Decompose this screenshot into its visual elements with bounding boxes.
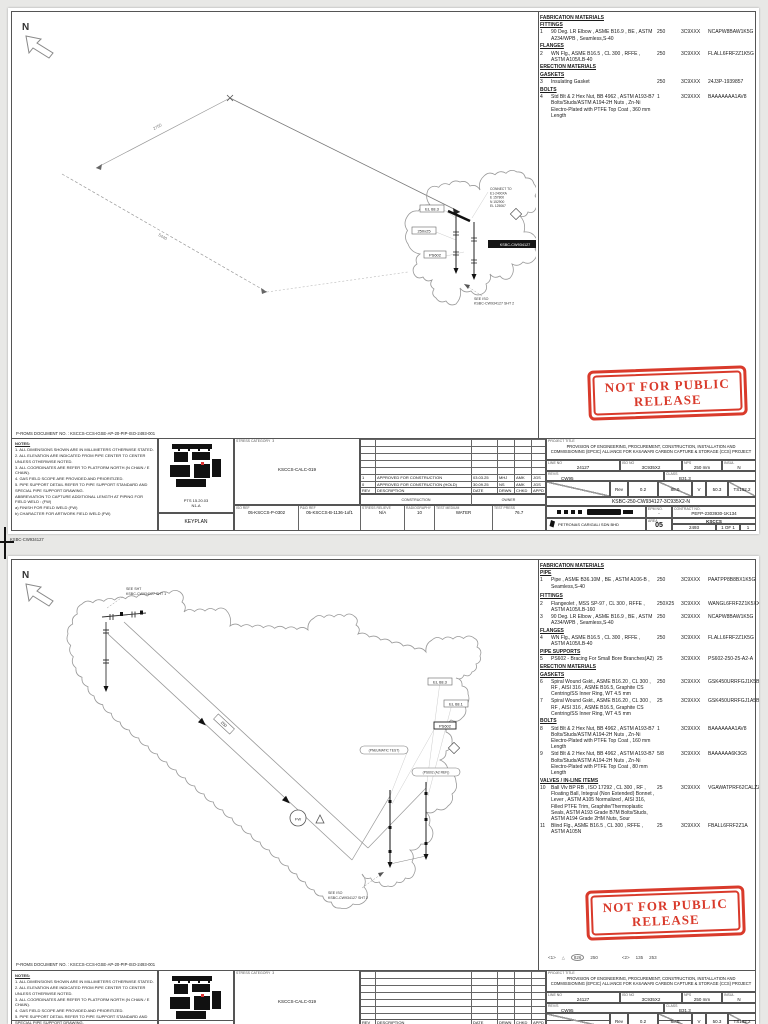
- item-description: Pipe , ASME B36.10M , BE , ASTM A106-B ,…: [551, 577, 655, 591]
- elevation-label: EL 68.1: [449, 702, 463, 707]
- field-class: CLASSB31.3: [664, 1003, 756, 1013]
- revision-table: [360, 970, 546, 1019]
- continuation-note: SEE ISO KSBC-CW934127 SHT 2: [474, 297, 514, 306]
- support-label: PS602: [439, 724, 452, 729]
- item-ident: 3C9XXX: [681, 823, 706, 835]
- item-no: 10: [540, 785, 549, 822]
- contractor-logo: [547, 507, 643, 517]
- value-cell: V: [692, 481, 706, 497]
- item-description: Insulating Gasket: [551, 79, 655, 85]
- item-ident: 3C9XXX: [681, 635, 706, 647]
- item-ident: 3C9XXX: [681, 614, 706, 626]
- revision-row: [361, 439, 545, 446]
- pipe-run: [108, 622, 426, 860]
- item-description: WN Flg., ASME B16.5 , CL 300 , RFFE , AS…: [551, 51, 655, 63]
- item-code: FLALL6FRF2Z1K5G: [708, 51, 758, 63]
- contractor-logo-cell: [546, 506, 646, 518]
- svg-text:SEE ISO: SEE ISO: [328, 891, 343, 895]
- svg-text:FW: FW: [295, 817, 301, 822]
- item-size: 250: [657, 29, 679, 41]
- field-service: REV/SCW95: [546, 471, 664, 481]
- branch-cluster: EL 68.3 EL 68.1 PS602 (PNEUMATIC TEST) (…: [290, 678, 468, 900]
- materials-section-header: FITTINGS: [540, 593, 754, 599]
- item-description: Std Blt & 2 Hex Nut, BB 4962 , ASTM A193…: [551, 726, 655, 751]
- item-no: 5: [540, 656, 549, 662]
- materials-section-header: GASKETS: [540, 72, 754, 78]
- materials-row: 4 WN Flg., ASME B16.5 , CL 300 , RFFE , …: [540, 635, 754, 647]
- revision-row: [361, 978, 545, 985]
- materials-row: 3 90 Deg. LR Elbow , ASME B16.9 , BE , A…: [540, 614, 754, 626]
- note-line: 1. ALL DIMENSIONS SHOWN ARE IN MILLIMETE…: [15, 447, 154, 452]
- materials-row: 4 Std Blt & 2 Hex Nut, BB 4962 , ASTM A1…: [540, 94, 754, 119]
- dimension-label: 2750: [152, 122, 163, 131]
- item-ident: 3C9XXX: [681, 601, 706, 613]
- revision-row: [361, 971, 545, 978]
- svg-text:EL 125067: EL 125067: [490, 204, 506, 208]
- see-sheet-note: SEE SHT KSBC-CW934127 SHT 1: [126, 587, 166, 596]
- keyplan-box: PTS 15.20.03 N1-A: [158, 970, 234, 1024]
- revision-cloud: [67, 590, 481, 908]
- note-line: 5. PIPE SUPPORT DETAIL REFER TO PIPE SUP…: [15, 1014, 154, 1024]
- project-title-cell: PROJECT TITLE PROVISION OF ENGINEERING, …: [546, 438, 756, 460]
- revision-cloud: [405, 170, 536, 305]
- materials-row: 10 Ball Vlv BP RB , ISO 17292 , CL 300 ,…: [540, 785, 754, 822]
- item-no: 9: [540, 751, 549, 776]
- item-ident: 3C9XXX: [681, 751, 706, 776]
- materials-divider: [538, 12, 539, 438]
- tie-in-detail: SEE SHT KSBC-CW934127 SHT 1: [102, 587, 166, 692]
- revision-row: [361, 999, 545, 1006]
- note-line: 1. ALL DIMENSIONS SHOWN ARE IN MILLIMETE…: [15, 979, 154, 984]
- item-size: 250: [657, 614, 679, 626]
- field-line-no: LINE NO24127: [546, 460, 620, 471]
- materials-section-header: PIPE: [540, 570, 754, 576]
- trim-mark: [4, 527, 6, 559]
- not-for-public-release-stamp: NOT FOR PUBLICRELEASE: [585, 885, 746, 941]
- field-insulation: INSULN: [722, 992, 756, 1003]
- item-description: Flangeolet , MSS SP-97 , CL 300 , RFFE ,…: [551, 601, 655, 613]
- notes-title: NOTES:: [15, 973, 154, 978]
- proms-document-no: P-ROMS DOCUMENT NO. : KSCCS-CCS-IGSE-AP-…: [16, 962, 155, 967]
- rev-cell: Rev: [610, 481, 628, 497]
- value-cell: 0.2: [628, 481, 658, 497]
- size-label: 250x25: [417, 229, 431, 234]
- field-insulation: INSULN: [722, 460, 756, 471]
- item-size: 250: [657, 679, 679, 698]
- north-label: N: [22, 22, 29, 33]
- reference-row: ISO REF05-KSCCS-P-0302 P&ID REF05-KSCCS-…: [234, 505, 546, 531]
- item-size: 1: [657, 726, 679, 751]
- page2-isometric-drawing: N SEE SHT KSBC-CW934127 SHT 1: [12, 560, 536, 964]
- company-name: PETRONAS CARIGALI SDN BHD: [558, 522, 619, 527]
- svg-text:KSBC-CW934127 SHT 1: KSBC-CW934127 SHT 1: [126, 592, 166, 596]
- item-ident: 3C9XXX: [681, 94, 706, 119]
- field-nps: NPS250 mm: [682, 460, 722, 471]
- note-line: ABBREVIATION TO CAPTURE ADDITIONAL LENGT…: [15, 494, 154, 504]
- item-size: 25: [657, 823, 679, 835]
- field-contract-no: CONTRACT NO.PEFP-2303930-1K134: [672, 506, 756, 518]
- reference-cell: ISO REF05-KSCCS-P-0302: [235, 506, 299, 530]
- item-ident: 3C9XXX: [681, 679, 706, 698]
- page1-isometric-drawing: N 2750 5440: [12, 12, 536, 436]
- reference-cell: TEST PRESS76.7: [493, 506, 545, 530]
- materials-section-header: GASKETS: [540, 672, 754, 678]
- materials-row: 7 Spiral Wound Gskt., ASME B16.20 , CL 3…: [540, 698, 754, 717]
- item-description: Spiral Wound Gskt., ASME B16.20 , CL 300…: [551, 679, 655, 698]
- note-line: 5. PIPE SUPPORT DETAIL REFER TO PIPE SUP…: [15, 482, 154, 492]
- materials-row: 5 PS602 - Bracing For Small Bore Branche…: [540, 656, 754, 662]
- revision-table-header: REVDESCRIPTIONDATE DRWNCHKDAPPD: [360, 487, 546, 494]
- reference-cell: TEST MEDIUMWATER: [435, 506, 493, 530]
- na-cell: [546, 1013, 610, 1024]
- connect-note: CONNECT TO E1-2400XA E 157800 N 152900 E…: [490, 187, 512, 208]
- item-size: 25: [657, 785, 679, 822]
- item-code: GSK450URRFGJ1K5B: [708, 679, 758, 698]
- support-ref-label: (PS602 (A2 REF)): [423, 771, 450, 775]
- materials-row: 3 Insulating Gasket 250 3C9XXX 24J3P-193…: [540, 79, 754, 85]
- materials-section-header: ERECTION MATERIALS: [540, 64, 754, 70]
- note-line: 2. ALL ELEVATION ARE INDICATED FROM PIPE…: [15, 453, 154, 463]
- item-code: VGAWATPRF62CALZZ1A: [708, 785, 758, 822]
- note-line: b) CHARACTER FOR ARTWORK FIELD WELD (FW): [15, 511, 154, 516]
- revision-row: [361, 460, 545, 467]
- field-epm-no: EPM NO.-: [646, 506, 672, 518]
- keyplan-image: [164, 973, 228, 1024]
- item-description: Spiral Wound Gskt., ASME B16.20 , CL 300…: [551, 698, 655, 717]
- item-code: NCAPW8BAW1K5G: [708, 614, 758, 626]
- stress-category-box: STRESS CATEGORY 3 KSCCS-CALC-019: [234, 438, 360, 505]
- item-ident: 3C9XXX: [681, 785, 706, 822]
- reference-cell: STRESS RELIEVEN/A: [361, 506, 405, 530]
- value-cell: 0.2: [628, 1013, 658, 1024]
- item-size: 250X25: [657, 601, 679, 613]
- diamond-symbol: [448, 742, 459, 753]
- item-no: 1: [540, 577, 549, 591]
- field-line-no: LINE NO24127: [546, 992, 620, 1003]
- item-no: 8: [540, 726, 549, 751]
- materials-row: 6 Spiral Wound Gskt., ASME B16.20 , CL 3…: [540, 679, 754, 698]
- field-class: CLASSB31.3: [664, 471, 756, 481]
- revision-row: [361, 985, 545, 992]
- materials-section-header: BOLTS: [540, 718, 754, 724]
- keyplan-caption: KEYPLAN: [158, 513, 234, 531]
- reference-cell: RADIOGRAPHY10: [405, 506, 435, 530]
- item-no: 1: [540, 29, 549, 41]
- item-ident: 3C9XXX: [681, 656, 706, 662]
- rev-triangle-icon: [316, 815, 324, 823]
- stress-category-box: STRESS CATEGORY 3 KSCCS-CALC-019: [234, 970, 360, 1024]
- location-marker: [201, 994, 204, 997]
- item-code: PS602-250-25-A2-A: [708, 656, 758, 662]
- item-ident: 3C9XXX: [681, 79, 706, 85]
- item-size: 5/8: [657, 751, 679, 776]
- item-no: 7: [540, 698, 549, 717]
- field-service: REV/SCW95: [546, 1003, 664, 1013]
- item-code: BAAAAAAA1AV8: [708, 726, 758, 751]
- item-ident: 3C9XXX: [681, 726, 706, 751]
- value-cell: 88.0: [658, 481, 692, 497]
- item-description: Blind Flg., ASME B16.5 , CL 300 , RFFE ,…: [551, 823, 655, 835]
- item-code: PAATPP8B8BX1K5G: [708, 577, 758, 591]
- keyplan-grid: N1-A: [159, 503, 233, 508]
- item-code: BAAAAAA6K3G5: [708, 751, 758, 776]
- item-size: 25: [657, 698, 679, 717]
- trim-mark: [0, 541, 14, 543]
- north-arrow-icon: [26, 36, 53, 58]
- materials-section-header: FLANGES: [540, 43, 754, 49]
- notes-block: NOTES: 1. ALL DIMENSIONS SHOWN ARE IN MI…: [11, 970, 158, 1024]
- revision-row: [361, 1006, 545, 1013]
- item-size: 250: [657, 577, 679, 591]
- value-cell: 50.3: [706, 481, 728, 497]
- notes-title: NOTES:: [15, 441, 154, 446]
- materials-divider: [538, 560, 539, 970]
- materials-row: 11 Blind Flg., ASME B16.5 , CL 300 , RFF…: [540, 823, 754, 835]
- materials-list: FABRICATION MATERIALS PIPE 1 Pipe , ASME…: [540, 561, 754, 836]
- run-size-label: 250: [214, 714, 235, 734]
- notes-block: NOTES: 1. ALL DIMENSIONS SHOWN ARE IN MI…: [11, 438, 158, 531]
- materials-row: 1 Pipe , ASME B36.10M , BE , ASTM A106-B…: [540, 577, 754, 591]
- support-label: PS602: [429, 253, 442, 258]
- revision-table-subbar: CONSTRUCTIONOWNER: [360, 494, 546, 505]
- materials-list: FABRICATION MATERIALS FITTINGS 1 90 Deg.…: [540, 13, 754, 119]
- item-size: 1: [657, 94, 679, 119]
- not-for-public-release-stamp: NOT FOR PUBLICRELEASE: [587, 365, 748, 421]
- item-code: 24J3P-1939857: [708, 79, 758, 85]
- continuation-refs: <1> △ 826 250 <2> 135 253: [548, 954, 657, 961]
- revision-table: 1APPROVED FOR CONSTRUCTION03.03.25 MHJAM…: [360, 438, 546, 487]
- revision-row: [361, 446, 545, 453]
- item-ident: 3C9XXX: [681, 51, 706, 63]
- item-no: 4: [540, 94, 549, 119]
- diamond-symbol: [510, 208, 521, 219]
- item-no: 2: [540, 601, 549, 613]
- company-cell: PETRONAS CARIGALI SDN BHD: [546, 518, 646, 531]
- item-size: 25: [657, 656, 679, 662]
- svg-text:KSBC-CW934127 SHT 2: KSBC-CW934127 SHT 2: [328, 896, 368, 900]
- svg-text:KSBC-CW934127 SHT 2: KSBC-CW934127 SHT 2: [474, 302, 514, 306]
- item-ident: 3C9XXX: [681, 577, 706, 591]
- calc-ref: KSCCS-CALC-019: [235, 467, 359, 472]
- north-arrow-icon: [26, 584, 53, 606]
- item-code: GSK450URRFGJ1A5B: [708, 698, 758, 717]
- keyplan-image: [164, 441, 228, 493]
- item-description: WN Flg., ASME B16.5 , CL 300 , RFFE , AS…: [551, 635, 655, 647]
- field-iso-no: ISO NO3C935X2: [620, 992, 682, 1003]
- materials-section-header: ERECTION MATERIALS: [540, 664, 754, 670]
- drawing-sheet-1: N 2750 5440: [8, 8, 759, 534]
- rev-triangle-icon: △: [562, 955, 565, 960]
- item-code: NCAPW8BAW1K5G: [708, 29, 758, 41]
- match-line-label: KSBC-CW934127: [500, 243, 531, 247]
- field-drawing-no: 2493: [672, 524, 716, 531]
- value-cell: V: [692, 1013, 706, 1024]
- materials-row: 2 WN Flg., ASME B16.5 , CL 300 , RFFE , …: [540, 51, 754, 63]
- field-rev-no: 1: [740, 524, 756, 531]
- materials-section-header: FABRICATION MATERIALS: [540, 563, 754, 569]
- svg-text:SEE ISO: SEE ISO: [474, 297, 489, 301]
- pipe-detail: EL 68.3 250x25 PS602 CONNECT TO E1-2400X…: [412, 187, 536, 306]
- project-title-cell: PROJECT TITLE PROVISION OF ENGINEERING, …: [546, 970, 756, 992]
- drawing-number-bar: KSBC-250-CW934127-3C935X2-N: [546, 497, 756, 506]
- item-description: Std Blt & 2 Hex Nut, BB 4962 , ASTM A193…: [551, 94, 655, 119]
- na-cell: [546, 481, 610, 497]
- item-size: 250: [657, 79, 679, 85]
- item-description: 90 Deg. LR Elbow , ASME B16.9 , BE , AST…: [551, 29, 655, 41]
- drawing-sheet-2: N SEE SHT KSBC-CW934127 SHT 1: [8, 556, 759, 1024]
- value-cell: TS102.2: [728, 1013, 756, 1024]
- dimension-label: 5440: [157, 232, 168, 241]
- item-description: PS602 - Bracing For Small Bore Branches(…: [551, 656, 655, 662]
- item-size: 250: [657, 51, 679, 63]
- item-no: 3: [540, 614, 549, 626]
- materials-row: 8 Std Blt & 2 Hex Nut, BB 4962 , ASTM A1…: [540, 726, 754, 751]
- north-label: N: [22, 570, 29, 581]
- materials-section-header: FLANGES: [540, 628, 754, 634]
- note-line: 4. GAS FIELD SCOPE ARE PROVIDED AND PRIO…: [15, 476, 154, 481]
- clouded-value: 826: [571, 954, 585, 961]
- field-iso-no: ISO NO3C935X2: [620, 460, 682, 471]
- field-sheet-no: 1 OF 1: [716, 524, 740, 531]
- field-nps: NPS250 mm: [682, 992, 722, 1003]
- test-label: (PNEUMATIC TEST): [369, 749, 400, 753]
- keyplan-box: PTS 15.20.03 N1-A: [158, 438, 234, 513]
- field-area: AREA05: [646, 518, 672, 531]
- materials-section-header: BOLTS: [540, 87, 754, 93]
- item-no: 4: [540, 635, 549, 647]
- materials-section-header: PIPE SUPPORTS: [540, 649, 754, 655]
- note-line: 4. GAS FIELD SCOPE ARE PROVIDED AND PRIO…: [15, 1008, 154, 1013]
- item-no: 11: [540, 823, 549, 835]
- materials-section-header: FITTINGS: [540, 22, 754, 28]
- revision-row: [361, 467, 545, 474]
- rev-cell: Rev: [610, 1013, 628, 1024]
- materials-row: 2 Flangeolet , MSS SP-97 , CL 300 , RFFE…: [540, 601, 754, 613]
- item-no: 3: [540, 79, 549, 85]
- reference-cell: P&ID REF05-KSCCS-B-1136-1of1: [299, 506, 361, 530]
- item-no: 6: [540, 679, 549, 698]
- materials-section-header: FABRICATION MATERIALS: [540, 15, 754, 21]
- item-code: WANGL6FRF2Z1K5XXG: [708, 601, 758, 613]
- item-ident: 3C9XXX: [681, 698, 706, 717]
- dimension-lines: 2750 5440: [62, 95, 460, 294]
- materials-section-header: VALVES / IN-LINE ITEMS: [540, 778, 754, 784]
- item-code: FLALL6FRF2Z1K5G: [708, 635, 758, 647]
- value-cell: 88.0: [658, 1013, 692, 1024]
- elevation-label: EL 68.3: [425, 207, 439, 212]
- value-cell: 50.3: [706, 1013, 728, 1024]
- value-cell: TS102.2: [728, 481, 756, 497]
- note-line: a) FINISH FOR FIELD WELD (FW): [15, 505, 154, 510]
- elevation-label: EL 68.3: [433, 680, 447, 685]
- item-description: Ball Vlv BP RB , ISO 17292 , CL 300 , RF…: [551, 785, 655, 822]
- note-line: 3. ALL COORDINATES ARE REFER TO PLATFORM…: [15, 997, 154, 1007]
- location-marker: [201, 462, 204, 465]
- item-ident: 3C9XXX: [681, 29, 706, 41]
- continuation-note: SEE ISO KSBC-CW934127 SHT 2: [328, 891, 368, 900]
- revision-row: [361, 992, 545, 999]
- note-line: 2. ALL ELEVATION ARE INDICATED FROM PIPE…: [15, 985, 154, 995]
- proms-document-no: P-ROMS DOCUMENT NO. : KSCCS-CCS-IGSE-AP-…: [16, 431, 155, 436]
- item-description: Std Blt & 2 Hex Nut, BB 4962 , ASTM A193…: [551, 751, 655, 776]
- item-code: BAAAAAAA1AV8: [708, 94, 758, 119]
- revision-row: [361, 453, 545, 460]
- revision-table-header: REVDESCRIPTIONDATE DRWNCHKDAPPD: [360, 1019, 546, 1024]
- item-no: 2: [540, 51, 549, 63]
- item-description: 90 Deg. LR Elbow , ASME B16.9 , BE , AST…: [551, 614, 655, 626]
- file-number-label: KSBC-CW934127: [10, 537, 44, 542]
- revision-row: 1APPROVED FOR CONSTRUCTION03.03.25 MHJAM…: [361, 474, 545, 481]
- item-size: 250: [657, 635, 679, 647]
- materials-row: 1 90 Deg. LR Elbow , ASME B16.9 , BE , A…: [540, 29, 754, 41]
- petronas-logo: [549, 520, 556, 528]
- item-code: FBALL6FRF2Z1A: [708, 823, 758, 835]
- materials-row: 9 Std Blt & 2 Hex Nut, BB 4962 , ASTM A1…: [540, 751, 754, 776]
- svg-text:SEE SHT: SEE SHT: [126, 587, 142, 591]
- note-line: 3. ALL COORDINATES ARE REFER TO PLATFORM…: [15, 465, 154, 475]
